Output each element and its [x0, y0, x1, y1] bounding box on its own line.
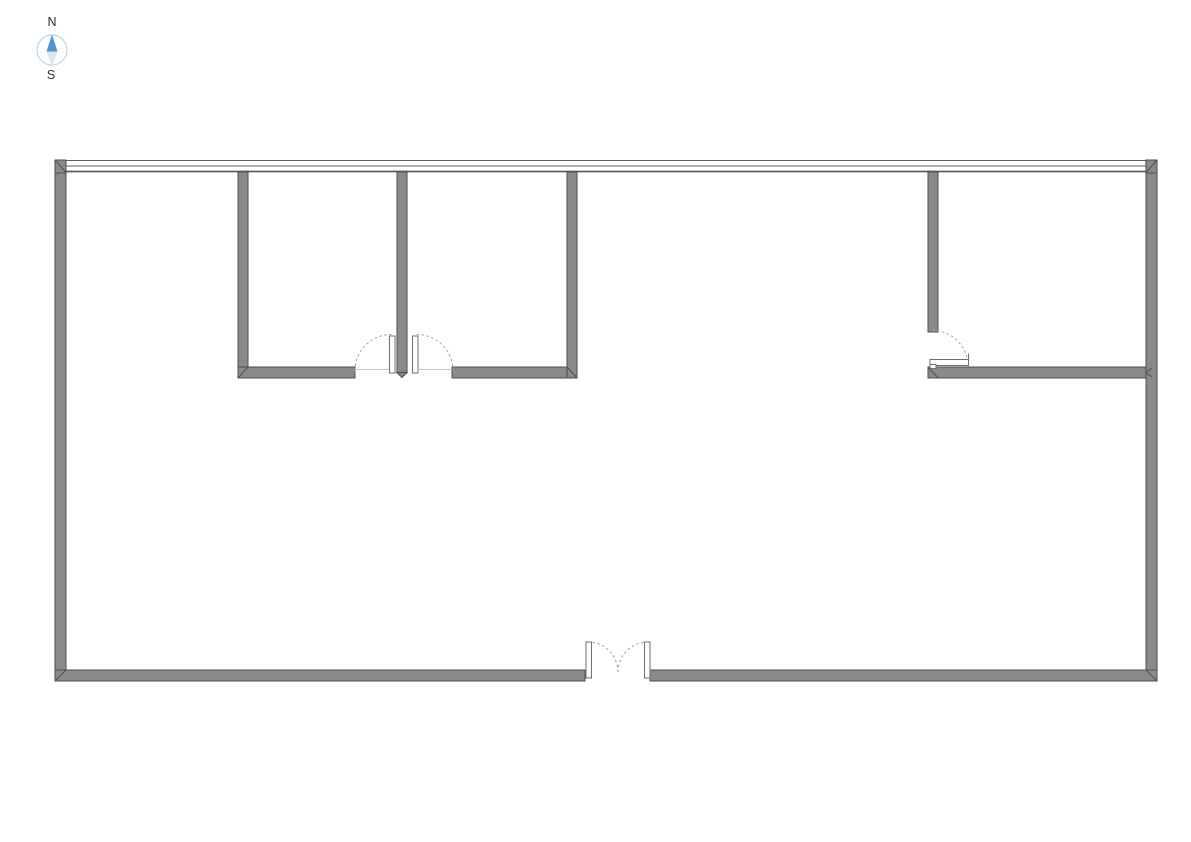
door-room1-swing-arc: [355, 335, 391, 371]
floorplan-page: N S: [0, 0, 1191, 842]
compass-south-label: S: [47, 69, 55, 82]
door-room3-leaf: [930, 365, 936, 369]
door-entrance-right-swing-arc: [618, 642, 648, 672]
wall-bottom-west-segment: [55, 670, 585, 681]
floorplan-drawing: [0, 0, 1191, 842]
door-room2-leaf: [413, 336, 419, 373]
wall-room3-bottom: [928, 367, 1146, 378]
door-entrance-left-leaf: [586, 642, 592, 678]
door-entrance-right-leaf: [645, 642, 651, 678]
wall-outer-left: [55, 172, 66, 681]
wall-bottom-east-segment: [650, 670, 1157, 681]
wall-divider-room1-room2: [397, 172, 407, 373]
door-entrance-left-swing-arc: [588, 642, 618, 672]
wall-room3-west: [928, 172, 938, 332]
wall-room2-bottom: [452, 367, 577, 378]
wall-outer-right: [1146, 172, 1157, 681]
wall-room1-bottom: [238, 367, 355, 378]
door-room1-leaf: [390, 336, 396, 373]
compass-north-arrow-icon: [47, 35, 58, 52]
compass-north-label: N: [47, 16, 56, 29]
wall-divider-tip: [397, 373, 407, 378]
wall-room1-west: [238, 172, 248, 367]
wall-room2-east: [567, 172, 577, 378]
door-room2-swing-arc: [417, 335, 453, 371]
